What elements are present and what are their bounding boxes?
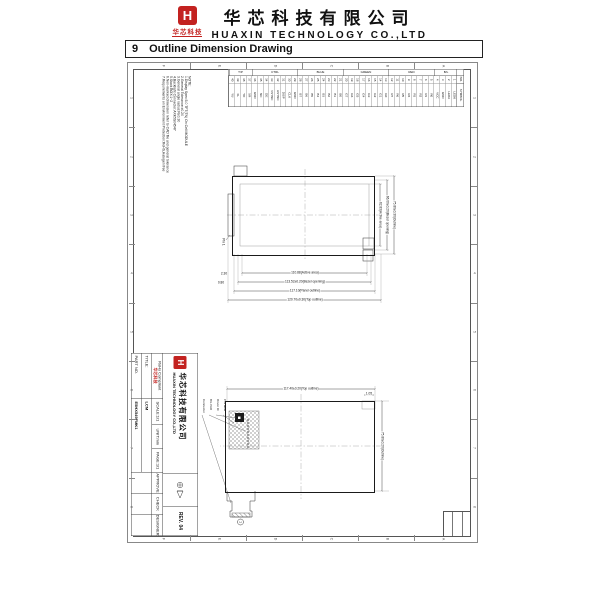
note-line: 6.Non-marked dimension refer to CAD file… — [165, 76, 169, 201]
pin-group: B/L — [434, 70, 457, 76]
pin-row: 15G2 — [371, 76, 377, 107]
zone-tick — [129, 303, 135, 304]
note-line: 1.Display Spec:5.0 TFT(TN) On Cell MODUL… — [184, 76, 188, 201]
pin-row: 11R6 — [394, 76, 400, 107]
dim-label-back-height: 75.80±0.20(Outline) — [380, 431, 383, 460]
section-number: 9 — [132, 43, 138, 55]
pin-row: 31DISP — [280, 76, 286, 107]
zone-tick — [471, 303, 477, 304]
zone-number: 1 — [472, 97, 476, 99]
pin-rows: 1LEDK2LEDA3GND4VCC5R06R17R28R39R410R511R… — [229, 76, 457, 107]
zone-number: 5 — [129, 331, 133, 333]
page-cell: PAGE:1/1 — [152, 449, 163, 473]
projection-symbol-icon — [163, 474, 198, 507]
company-logo-caption: 华芯科技 — [172, 26, 202, 37]
zone-tick — [471, 361, 477, 362]
pin-row: 30CLK — [286, 76, 292, 107]
zone-number: 4 — [472, 272, 476, 274]
zone-tick — [129, 244, 135, 245]
title-block-logo-icon: H — [174, 356, 187, 369]
zone-letter: F — [161, 65, 165, 67]
pin-row: 7R2 — [417, 76, 423, 107]
dim-label-small-1: 2.30 — [220, 272, 227, 275]
pin-row: 35NC — [257, 76, 263, 107]
zone-number: 3 — [472, 214, 476, 216]
pin-row: 19G6 — [348, 76, 354, 107]
zone-tick — [129, 127, 135, 128]
zone-number: 6 — [472, 389, 476, 391]
title-block-company-row: H 华芯科技有限公司 HUAXIN TECHNOLOGY CO.,LTD REV… — [163, 354, 198, 536]
pin-group: CTRL — [252, 70, 298, 76]
leader-label-ic: Driver IC — [216, 399, 219, 411]
pin-row: 4VCC — [434, 76, 440, 107]
pin-row: 8R3 — [411, 76, 417, 107]
pin-row: 32HSYNC — [274, 76, 280, 107]
dim-label-height-bezel: 66.00±0.20(Bezel opening) — [385, 195, 388, 234]
pin-group: BLUE — [297, 70, 343, 76]
section-title: Outline Dimension Drawing — [149, 43, 293, 55]
zone-tick — [246, 63, 247, 69]
dim-label-height-aa: 62.83(Active area) — [378, 201, 381, 228]
title-block-meta-row: RoHs Compliant 华芯科技 SCALE:1/1 UNIT:mm PA… — [152, 354, 163, 536]
title-row: TITLE: LCM — [142, 354, 152, 473]
rohs-label: RoHs Compliant — [157, 361, 161, 390]
part-no-value: E5HX549FMK1 — [132, 399, 142, 473]
pin-row: 1LEDK — [451, 76, 457, 107]
title-label: TITLE: — [142, 354, 152, 399]
pin1-label: Pin 1 — [221, 238, 224, 246]
pin-row: 26B5 — [308, 76, 314, 107]
page-header: H 华芯科技 华芯科技有限公司 HUAXIN TECHNOLOGY CO.,LT… — [0, 4, 600, 41]
note-line: 4.Backlight Connector:AXK5S04547 — [172, 76, 176, 201]
designer-cell: DESIGNER — [152, 515, 163, 536]
zone-letter: D — [273, 538, 277, 541]
zone-tick — [129, 419, 135, 420]
zone-tick — [246, 535, 247, 541]
pin-row: 9R4 — [405, 76, 411, 107]
zone-tick — [358, 63, 359, 69]
pin-row: 34DE — [263, 76, 269, 107]
zone-tick — [129, 186, 135, 187]
circle-marker: 1 — [239, 521, 242, 523]
zone-tick — [190, 535, 191, 541]
title-block-rev: REV. 04 — [163, 507, 198, 536]
zone-letter: A — [441, 65, 445, 67]
zone-tick — [414, 63, 415, 69]
pin-row: 23B2 — [326, 76, 332, 107]
zone-tick — [471, 419, 477, 420]
zone-number: 8 — [472, 506, 476, 508]
title-block: H 华芯科技有限公司 HUAXIN TECHNOLOGY CO.,LTD REV… — [131, 353, 198, 536]
pin-row: 40YU — [229, 76, 235, 107]
pin-row: 38YD — [240, 76, 246, 107]
zone-tick — [471, 244, 477, 245]
rohs-cell: RoHs Compliant 华芯科技 — [152, 354, 163, 399]
dim-label-back-width: 117.40±0.20(Top outline) — [283, 387, 319, 390]
pin-row: 17G4 — [360, 76, 366, 107]
pin-row: 2LEDA — [445, 76, 451, 107]
title-value: LCM — [142, 399, 152, 473]
zone-letter: C — [329, 65, 333, 68]
zone-number: 2 — [129, 156, 133, 158]
pin-row: 14G1 — [377, 76, 383, 107]
pin-row: 5R0 — [428, 76, 434, 107]
pin-row: 33VSYNC — [269, 76, 275, 107]
pin-row: 10R5 — [400, 76, 406, 107]
drawing-sheet: NO. SYMBOL 1LEDK2LEDA3GND4VCC5R06R17R28R… — [127, 62, 478, 543]
pin-row: 13G0 — [382, 76, 388, 107]
pin-table-header: NO. SYMBOL — [457, 70, 464, 107]
pin-row: 37XR — [246, 76, 252, 107]
pin-table: NO. SYMBOL 1LEDK2LEDA3GND4VCC5R06R17R28R… — [228, 69, 464, 107]
pin-group: RED — [389, 70, 435, 76]
dim-label-back-step: 1.05 — [365, 392, 372, 395]
zone-tick — [471, 478, 477, 479]
pin-group: GREEN — [343, 70, 389, 76]
approve-cell: APPROVE — [152, 473, 163, 494]
page: { "header": { "logo_letter": "H", "logo_… — [0, 0, 600, 600]
leader-label-blpad: B/L PAD — [209, 399, 212, 410]
zone-letter: E — [217, 65, 221, 67]
zone-number: 8 — [129, 506, 133, 508]
pin-group: T/P — [229, 70, 252, 76]
pin-row: 28B7 — [297, 76, 303, 107]
note-line: 5.Stack BOX:1~2 — [169, 76, 173, 201]
rohs-logo-text: 华芯科技 — [153, 368, 157, 384]
landscape-canvas: NO. SYMBOL 1LEDK2LEDA3GND4VCC5R06R17R28R… — [128, 63, 477, 542]
part-no-row: PART NO. E5HX549FMK1 — [132, 354, 142, 473]
pin-row: 29GND — [291, 76, 297, 107]
pin-row: 27B6 — [303, 76, 309, 107]
company-logo: H 华芯科技 — [172, 6, 202, 37]
pin-row: 12R7 — [388, 76, 394, 107]
signature-cells — [132, 473, 152, 536]
pin-table-no-header: NO. — [457, 76, 464, 84]
scale-cell: SCALE:1/1 — [152, 398, 163, 425]
pin-table-symbol-header: SYMBOL — [457, 84, 464, 107]
dim-label-small-2: 0.80 — [217, 281, 224, 284]
note-line: 3.General angle radius:R≤0.30 — [176, 76, 180, 201]
pin-row: 21B0 — [337, 76, 343, 107]
unit-cell: UNIT:mm — [152, 425, 163, 449]
pin-row: 24B3 — [320, 76, 326, 107]
pin-row: 3GND — [439, 76, 445, 107]
leader-label-connector: Connector — [202, 399, 205, 413]
note-line: 7.Requirements on Environment Protection… — [161, 76, 165, 201]
dim-label-width-outline: 120.70±0.30(Top outline) — [287, 298, 323, 301]
title-block-company-en: HUAXIN TECHNOLOGY CO.,LTD — [172, 373, 177, 441]
zone-tick — [414, 535, 415, 541]
zone-number: 1 — [129, 97, 133, 99]
zone-tick — [190, 63, 191, 69]
dim-label-width-panel: 117.10(Panel outline) — [289, 289, 320, 292]
zone-letter: C — [329, 538, 333, 541]
revision-strip — [443, 511, 471, 536]
company-name-cn: 华芯科技有限公司 — [224, 4, 416, 29]
zone-number: 6 — [129, 389, 133, 391]
zone-letter: F — [161, 538, 165, 540]
title-block-company: H 华芯科技有限公司 HUAXIN TECHNOLOGY CO.,LTD — [163, 354, 198, 474]
zone-number: 3 — [129, 214, 133, 216]
zone-tick — [302, 535, 303, 541]
pin-row: 6R1 — [422, 76, 428, 107]
zone-letter: D — [273, 65, 277, 68]
company-logo-icon: H — [178, 6, 197, 25]
zone-tick — [471, 127, 477, 128]
zone-number: 2 — [472, 156, 476, 158]
pin-row: 39XL — [234, 76, 240, 107]
back-view-outline — [225, 401, 375, 493]
pin-row: 36GND — [251, 76, 257, 107]
zone-letter: E — [217, 538, 221, 540]
zone-number: 4 — [129, 272, 133, 274]
title-block-company-cn: 华芯科技有限公司 — [178, 373, 189, 441]
front-view-outline — [232, 176, 375, 256]
note-line: NOTE: — [187, 76, 191, 201]
zone-tick — [129, 478, 135, 479]
dim-label-width-aa: 110.88(Active area) — [291, 271, 320, 274]
dim-label-height-outline: 75.80±0.30(Outline) — [392, 200, 395, 229]
section-header: 9 Outline Dimension Drawing — [125, 40, 483, 58]
pin-groups: B/LREDGREENBLUECTRLT/P — [229, 70, 457, 76]
zone-tick — [358, 535, 359, 541]
leader-label-pn: P/N label — [223, 399, 226, 411]
pin-row: 22B1 — [331, 76, 337, 107]
pin-row: 18G5 — [354, 76, 360, 107]
zone-tick — [471, 186, 477, 187]
pin-row: 20G7 — [343, 76, 349, 107]
pin-row: 25B4 — [314, 76, 320, 107]
notes-block: NOTE:1.Display Spec:5.0 TFT(TN) On Cell … — [161, 76, 191, 201]
zone-tick — [302, 63, 303, 69]
company-names: 华芯科技有限公司 HUAXIN TECHNOLOGY CO.,LTD — [211, 4, 427, 41]
dim-label-width-bezel: 113.52±0.20(Bezel opening) — [285, 280, 326, 283]
check-cell: CHECK — [152, 494, 163, 515]
zone-letter: B — [385, 538, 389, 540]
zone-letter: A — [441, 538, 445, 540]
pin-row: 16G3 — [365, 76, 371, 107]
zone-number: 5 — [472, 331, 476, 333]
zone-tick — [129, 361, 135, 362]
zone-letter: B — [385, 65, 389, 67]
